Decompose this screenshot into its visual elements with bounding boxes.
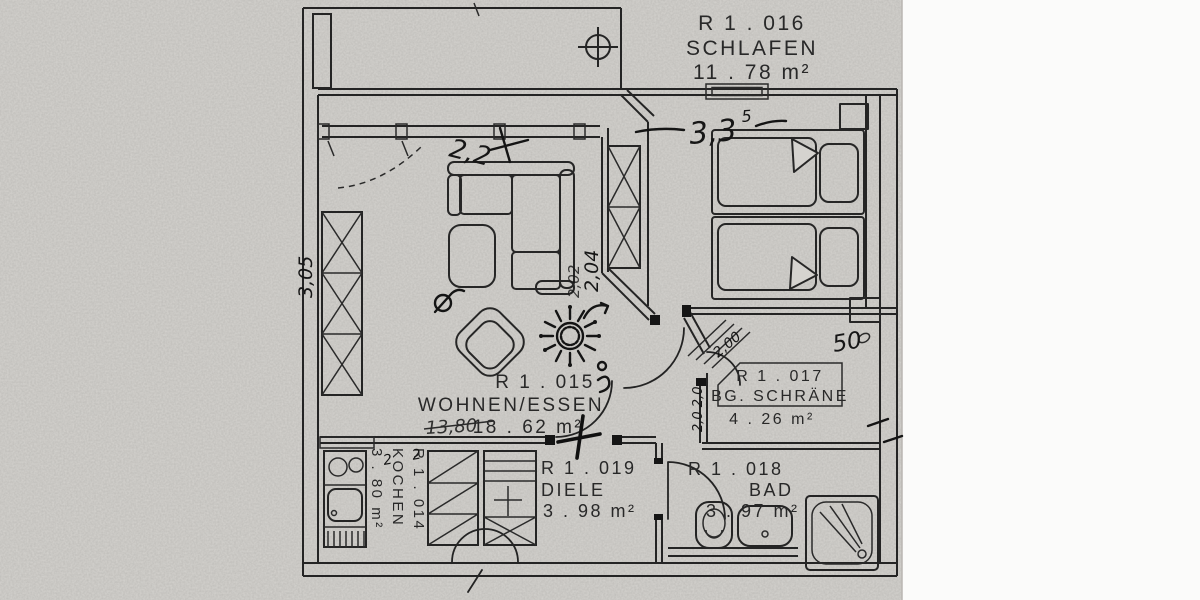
page-margin bbox=[902, 0, 1200, 600]
room-name-schraenke: BG. SCHRÄNE bbox=[711, 387, 849, 405]
room-name-diele: DIELE bbox=[541, 480, 606, 500]
dim-left-height: 3,05 bbox=[295, 256, 317, 298]
svg-text:3,3: 3,3 bbox=[688, 113, 739, 152]
scanned-floorplan-page: R 1 . 016 SCHLAFEN 11 . 78 m² R 1 . 015 … bbox=[0, 0, 1200, 600]
room-id-schlafen: R 1 . 016 bbox=[698, 12, 806, 35]
door-jamb bbox=[650, 315, 660, 325]
room-id-wohnen: R 1 . 015 bbox=[495, 372, 595, 393]
door-jamb bbox=[612, 435, 622, 445]
room-name-bad: BAD bbox=[749, 480, 794, 500]
dish-drainer bbox=[328, 531, 364, 548]
room-area-schlafen: 11 . 78 m² bbox=[693, 61, 811, 84]
room-id-schraenke: R 1 . 017 bbox=[736, 368, 823, 385]
room-name-schlafen: SCHLAFEN bbox=[686, 37, 818, 60]
label-schlafen: R 1 . 016 SCHLAFEN 11 . 78 m² bbox=[686, 12, 818, 84]
svg-text:50: 50 bbox=[831, 327, 864, 358]
door-jamb bbox=[682, 305, 691, 317]
room-area-schraenke: 4 . 26 m² bbox=[729, 411, 815, 428]
floorplan-svg: R 1 . 016 SCHLAFEN 11 . 78 m² R 1 . 015 … bbox=[0, 0, 1200, 600]
svg-text:2,0 2,0: 2,0 2,0 bbox=[691, 387, 706, 432]
room-name-wohnen: WOHNEN/ESSEN bbox=[418, 395, 604, 416]
room-id-bad: R 1 . 018 bbox=[688, 459, 784, 479]
door-jamb bbox=[696, 378, 706, 386]
svg-text:5: 5 bbox=[741, 106, 753, 126]
svg-text:13,80: 13,80 bbox=[425, 415, 478, 439]
room-area-bad: 3 . 97 m² bbox=[706, 501, 800, 521]
door-jamb bbox=[654, 514, 663, 520]
svg-text:3,05: 3,05 bbox=[295, 256, 317, 298]
svg-text:2,02: 2,02 bbox=[565, 265, 583, 298]
room-area-wohnen: 18 . 62 m² bbox=[473, 417, 584, 438]
room-area-diele: 3 . 98 m² bbox=[543, 501, 637, 521]
dim-wall-height-b: 2,02 bbox=[565, 265, 583, 298]
door-jamb bbox=[654, 458, 663, 464]
svg-text:2,04: 2,04 bbox=[581, 250, 603, 292]
room-id-diele: R 1 . 019 bbox=[541, 458, 637, 478]
dim-schraenke-small: 2,0 2,0 bbox=[691, 387, 706, 432]
dim-wall-height: 2,04 bbox=[581, 250, 603, 292]
